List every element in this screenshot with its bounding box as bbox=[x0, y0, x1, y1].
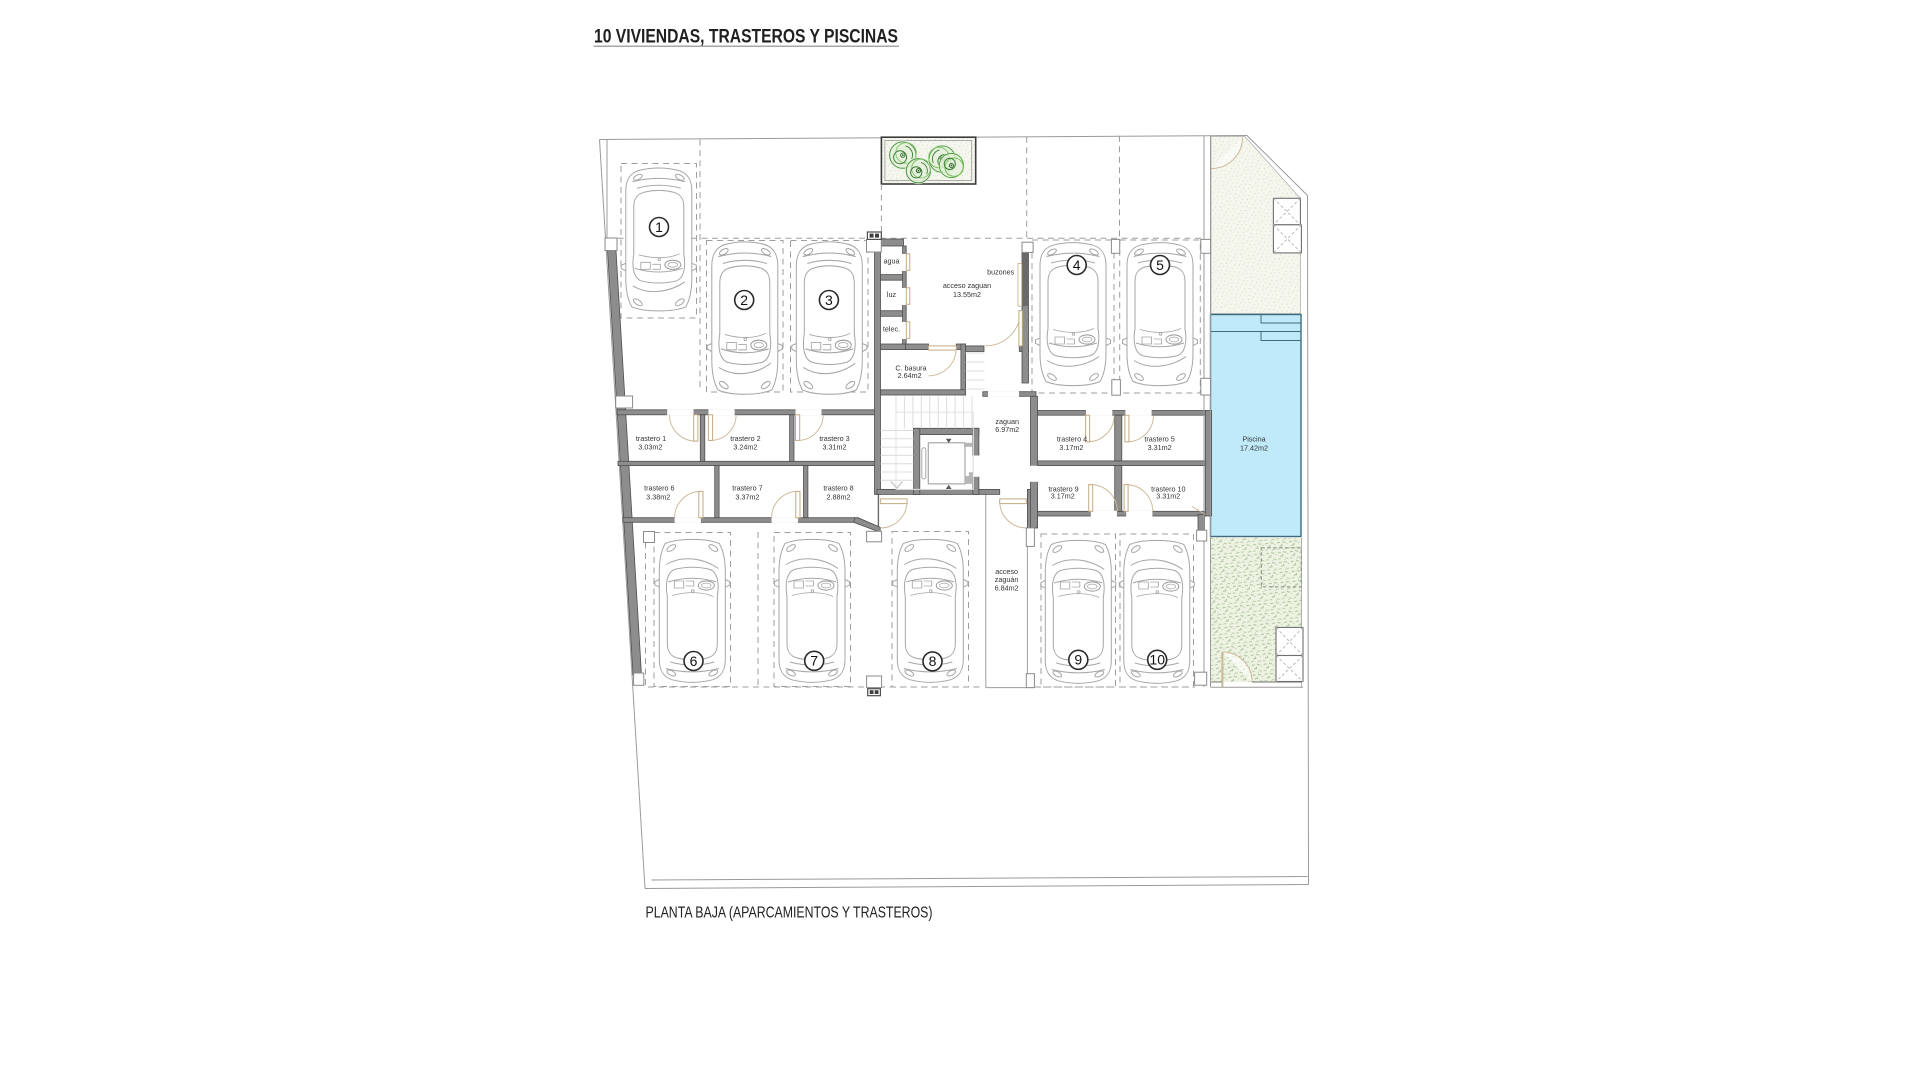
svg-text:1: 1 bbox=[655, 219, 663, 235]
svg-text:3.31m2: 3.31m2 bbox=[1148, 443, 1172, 452]
svg-text:4: 4 bbox=[1073, 257, 1081, 273]
svg-text:8: 8 bbox=[929, 653, 937, 669]
svg-text:2: 2 bbox=[740, 292, 748, 308]
svg-text:telec.: telec. bbox=[883, 325, 900, 334]
svg-text:3.17m2: 3.17m2 bbox=[1051, 491, 1075, 500]
svg-text:13.55m2: 13.55m2 bbox=[953, 290, 981, 299]
svg-text:3: 3 bbox=[825, 292, 833, 308]
svg-text:6.97m2: 6.97m2 bbox=[995, 425, 1019, 434]
svg-text:7: 7 bbox=[810, 653, 818, 669]
svg-text:3.17m2: 3.17m2 bbox=[1059, 443, 1083, 452]
svg-text:9: 9 bbox=[1074, 652, 1082, 668]
svg-text:3.03m2: 3.03m2 bbox=[638, 443, 662, 452]
svg-text:6: 6 bbox=[690, 653, 698, 669]
svg-text:17.42m2: 17.42m2 bbox=[1240, 444, 1268, 453]
svg-text:3.24m2: 3.24m2 bbox=[733, 443, 757, 452]
svg-text:trastero 6: trastero 6 bbox=[644, 484, 674, 493]
svg-text:trastero 8: trastero 8 bbox=[823, 484, 853, 493]
svg-text:luz: luz bbox=[887, 290, 897, 299]
svg-text:trastero 7: trastero 7 bbox=[732, 484, 762, 493]
svg-text:Piscina: Piscina bbox=[1242, 435, 1265, 444]
svg-text:10: 10 bbox=[1149, 652, 1165, 668]
svg-text:buzones: buzones bbox=[987, 267, 1015, 276]
svg-text:2.88m2: 2.88m2 bbox=[827, 492, 851, 501]
svg-text:5: 5 bbox=[1156, 257, 1164, 273]
svg-text:3.37m2: 3.37m2 bbox=[735, 492, 759, 501]
svg-text:3.38m2: 3.38m2 bbox=[646, 492, 670, 501]
svg-text:PLANTA BAJA (APARCAMIENTOS Y T: PLANTA BAJA (APARCAMIENTOS Y TRASTEROS) bbox=[646, 905, 933, 922]
svg-text:3.31m2: 3.31m2 bbox=[1156, 491, 1180, 500]
svg-text:6.84m2: 6.84m2 bbox=[995, 583, 1019, 592]
svg-text:3.31m2: 3.31m2 bbox=[823, 443, 847, 452]
svg-text:acceso zaguan: acceso zaguan bbox=[943, 281, 991, 290]
svg-text:2.64m2: 2.64m2 bbox=[898, 371, 922, 380]
svg-text:agua: agua bbox=[884, 257, 900, 266]
svg-text:10 VIVIENDAS, TRASTEROS Y PISC: 10 VIVIENDAS, TRASTEROS Y PISCINAS bbox=[594, 27, 898, 48]
